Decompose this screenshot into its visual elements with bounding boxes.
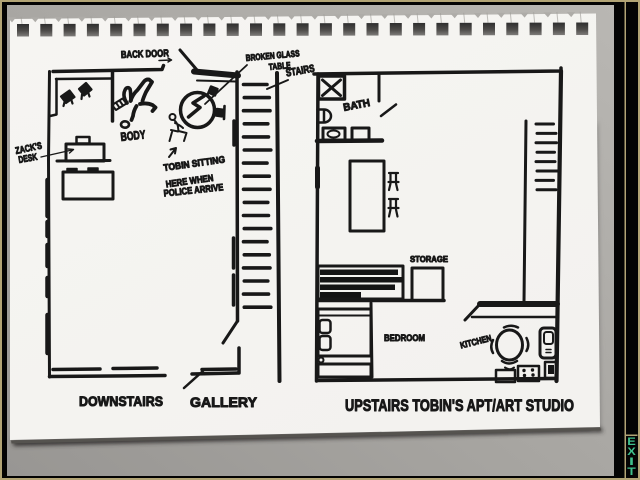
svg-text:UPSTAIRS TOBIN'S APT/ART STUD: UPSTAIRS TOBIN'S APT/ART STUDIO [345,397,574,415]
svg-text:TABLE: TABLE [268,60,291,72]
svg-text:DOWNSTAIRS: DOWNSTAIRS [79,394,163,409]
svg-text:BACK DOOR: BACK DOOR [121,48,170,61]
svg-text:GALLERY: GALLERY [190,395,257,410]
svg-text:T: T [627,466,636,478]
svg-text:STORAGE: STORAGE [410,254,448,264]
svg-text:BODY: BODY [120,127,146,144]
svg-text:BEDROOM: BEDROOM [384,333,425,344]
